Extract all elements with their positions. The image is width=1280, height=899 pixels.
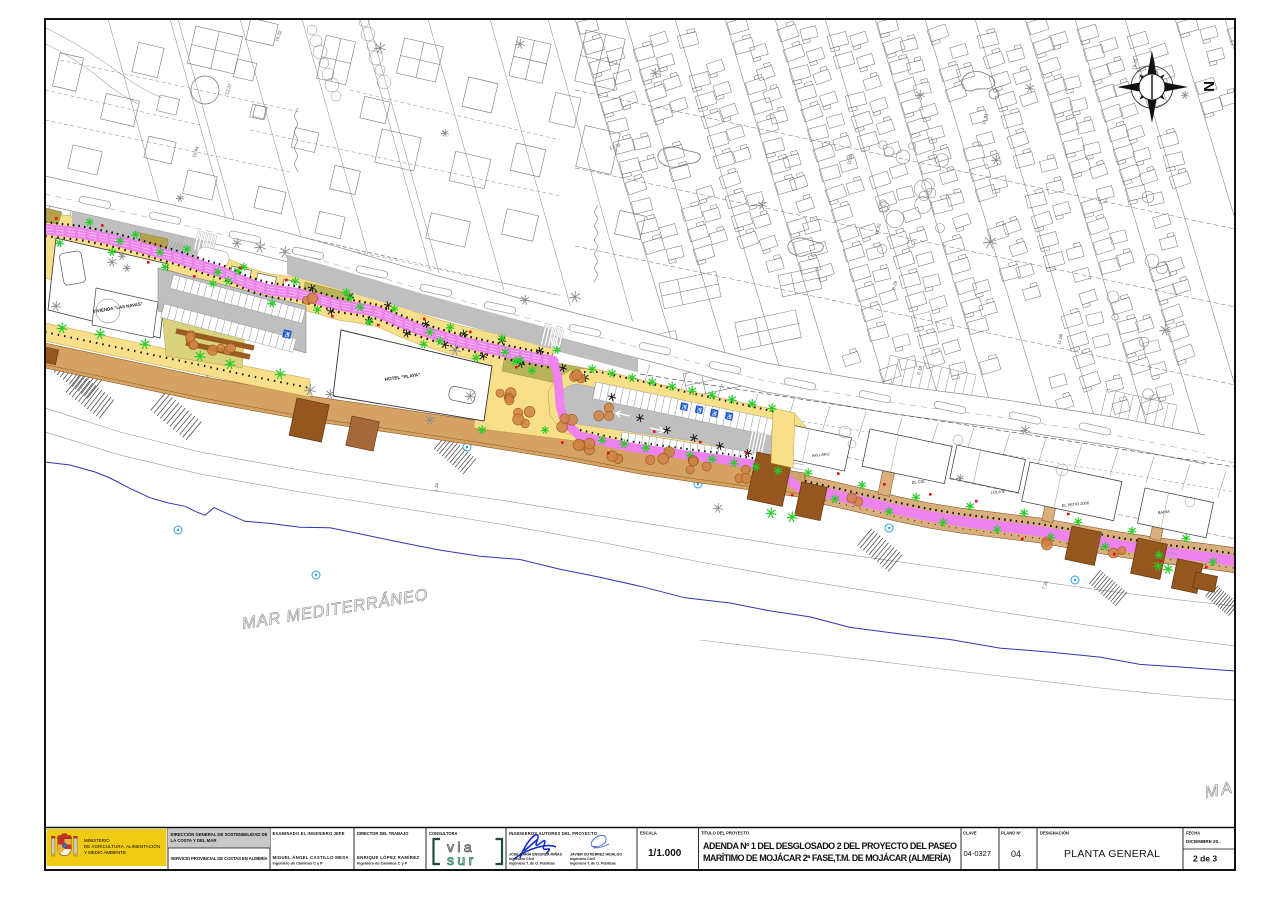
svg-text:ENRIQUE LÓPEZ RAMÍREZ: ENRIQUE LÓPEZ RAMÍREZ	[357, 855, 419, 860]
svg-text:CLAVE: CLAVE	[963, 831, 977, 836]
svg-text:1/1.000: 1/1.000	[648, 848, 682, 859]
svg-text:DIRECTOR DEL TRABAJO: DIRECTOR DEL TRABAJO	[357, 831, 409, 836]
svg-text:EXAMINADO EL INGENIERO JEFE: EXAMINADO EL INGENIERO JEFE	[273, 831, 345, 836]
svg-text:MINISTERIO: MINISTERIO	[84, 838, 110, 843]
svg-text:DIRECCIÓN GENERAL DE SOSTENIBI: DIRECCIÓN GENERAL DE SOSTENIBILIDAD DE	[171, 832, 268, 837]
svg-text:04: 04	[1011, 849, 1021, 859]
svg-text:PLANTA GENERAL: PLANTA GENERAL	[1064, 848, 1160, 860]
svg-text:DE AGRICULTURA, ALIMENTACIÓN: DE AGRICULTURA, ALIMENTACIÓN	[84, 844, 160, 849]
svg-text:LA COSTA Y DEL MAR: LA COSTA Y DEL MAR	[171, 838, 218, 843]
svg-text:Ingeniero Civil: Ingeniero Civil	[509, 857, 534, 861]
svg-text:JAVIER GUTIÉRREZ HIDALGO: JAVIER GUTIÉRREZ HIDALGO	[570, 852, 622, 857]
svg-text:Ingeniero T. de O. Públicas: Ingeniero T. de O. Públicas	[570, 862, 616, 866]
svg-text:ESCALA: ESCALA	[640, 831, 657, 836]
svg-text:Ingeniero Civil: Ingeniero Civil	[570, 857, 595, 861]
svg-text:FECHA: FECHA	[1186, 831, 1200, 836]
svg-text:TÍTULO DEL PROYECTO: TÍTULO DEL PROYECTO	[701, 831, 750, 836]
svg-text:INGENIEROS AUTORES DEL PROYECT: INGENIEROS AUTORES DEL PROYECTO	[509, 831, 598, 836]
svg-text:ADENDA Nº 1 DEL DESGLOSADO 2 D: ADENDA Nº 1 DEL DESGLOSADO 2 DEL PROYECT…	[703, 841, 957, 851]
svg-text:SERVICIO PROVINCIAL DE COSTAS: SERVICIO PROVINCIAL DE COSTAS EN ALMERÍA	[171, 856, 268, 861]
svg-text:MIGUEL ÁNGEL CASTILLO MESA: MIGUEL ÁNGEL CASTILLO MESA	[273, 855, 349, 860]
svg-text:sur: sur	[447, 852, 477, 868]
svg-text:Ingeniero T. de O. Públicas: Ingeniero T. de O. Públicas	[509, 862, 555, 866]
svg-text:MARÍTIMO DE MOJÁCAR 2ª FASE,T.: MARÍTIMO DE MOJÁCAR 2ª FASE,T.M. DE MOJÁ…	[703, 853, 951, 863]
svg-text:N: N	[1200, 81, 1217, 92]
svg-text:2 de 3: 2 de 3	[1193, 854, 1217, 864]
svg-text:DICIEMBRE 20..: DICIEMBRE 20..	[1186, 839, 1221, 844]
svg-text:Ingeniero de Caminos C y P: Ingeniero de Caminos C y P	[357, 862, 408, 866]
svg-text:04-0327: 04-0327	[964, 849, 992, 858]
svg-text:CONSULTORA: CONSULTORA	[429, 831, 458, 836]
svg-text:Y MEDIO AMBIENTE: Y MEDIO AMBIENTE	[84, 850, 126, 855]
svg-text:DESIGNACIÓN: DESIGNACIÓN	[1040, 831, 1069, 836]
svg-text:Ingeniero de Caminos C y P: Ingeniero de Caminos C y P	[273, 862, 324, 866]
svg-text:PLANO Nº: PLANO Nº	[1001, 831, 1021, 836]
svg-text:JOSÉ MARÍA ENSUNZA MIÑAS: JOSÉ MARÍA ENSUNZA MIÑAS	[509, 852, 563, 857]
